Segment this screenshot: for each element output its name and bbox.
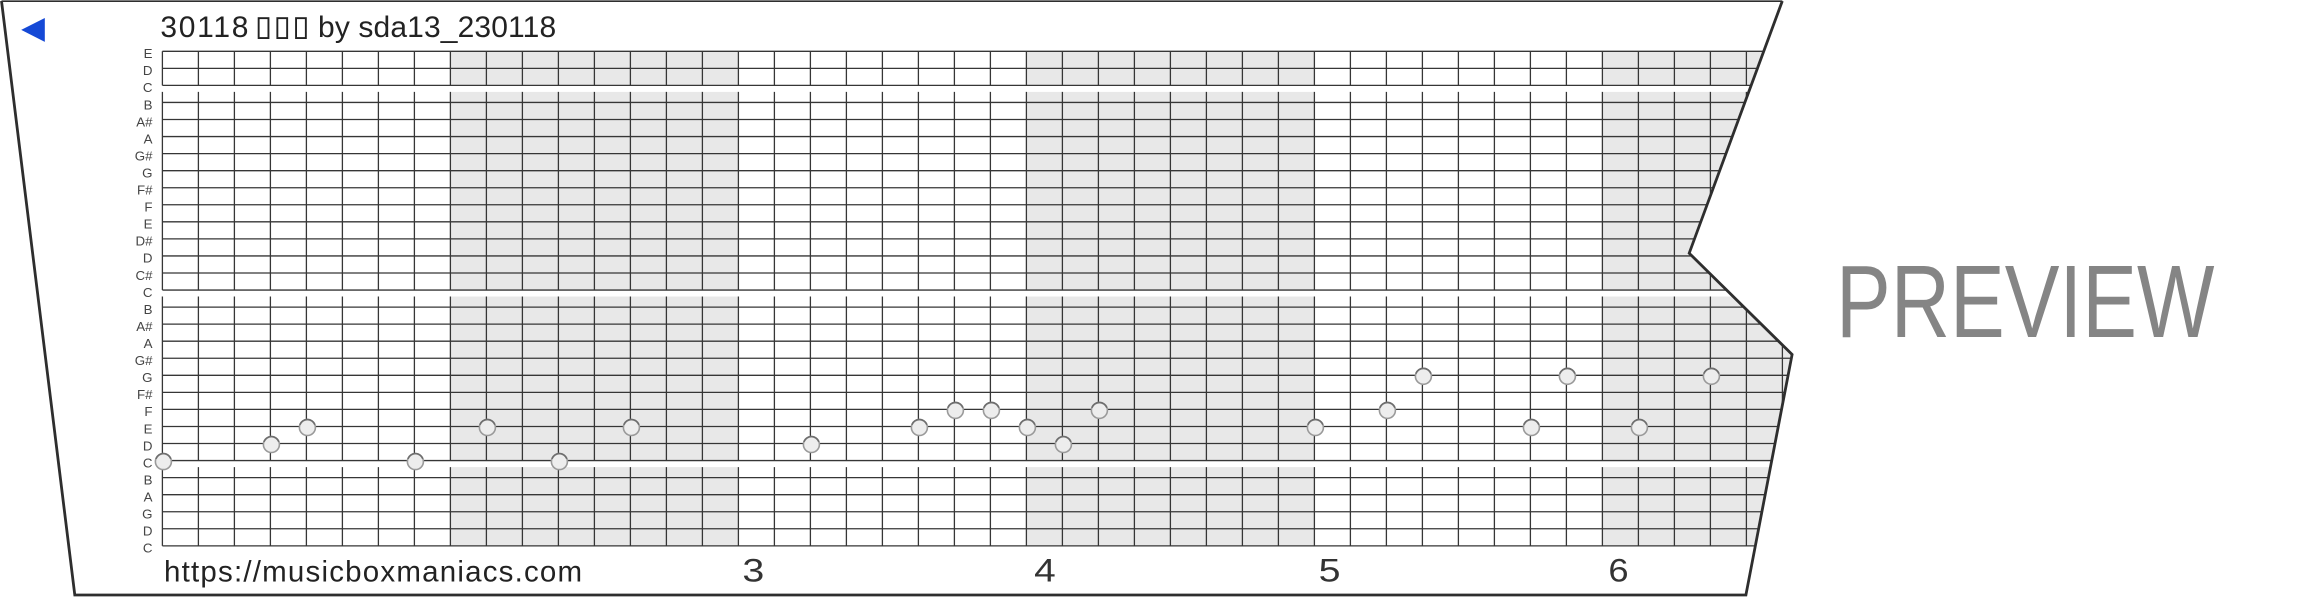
svg-text:A: A [144, 131, 153, 146]
svg-text:B: B [144, 97, 153, 112]
svg-text:E: E [144, 217, 153, 232]
svg-text:4: 4 [1034, 552, 1056, 588]
svg-text:6: 6 [1608, 552, 1628, 588]
svg-text:A: A [144, 489, 153, 504]
svg-text:G#: G# [135, 148, 153, 163]
svg-text:F#: F# [137, 183, 153, 198]
svg-text:https://musicboxmaniacs.com: https://musicboxmaniacs.com [164, 555, 583, 588]
svg-text:A#: A# [136, 114, 153, 129]
svg-text:F#: F# [137, 387, 153, 402]
svg-text:C: C [143, 80, 153, 95]
svg-text:B: B [144, 302, 153, 317]
svg-text:by sda13_230118: by sda13_230118 [318, 11, 556, 44]
svg-text:D: D [143, 63, 153, 78]
svg-text:B: B [144, 472, 153, 487]
svg-text:D: D [143, 438, 153, 453]
svg-text:A: A [144, 336, 153, 351]
svg-text:3: 3 [742, 552, 764, 588]
svg-text:G: G [142, 165, 152, 180]
svg-text:G#: G# [135, 353, 153, 368]
svg-text:F: F [144, 404, 152, 419]
svg-text:E: E [144, 46, 153, 61]
svg-text:D: D [143, 251, 153, 266]
svg-text:D: D [143, 524, 153, 539]
svg-text:A#: A# [136, 319, 153, 334]
svg-text:C: C [143, 285, 153, 300]
svg-text:F: F [144, 200, 152, 215]
svg-text:D#: D# [136, 234, 154, 249]
svg-text:C: C [143, 541, 153, 556]
svg-text:G: G [142, 507, 152, 522]
svg-text:30118: 30118 [160, 11, 250, 44]
svg-text:G: G [142, 370, 152, 385]
svg-text:C#: C# [136, 268, 154, 283]
svg-text:5: 5 [1319, 552, 1341, 588]
svg-text:C: C [143, 455, 153, 470]
svg-text:PREVIEW: PREVIEW [1836, 244, 2214, 359]
svg-text:E: E [144, 421, 153, 436]
